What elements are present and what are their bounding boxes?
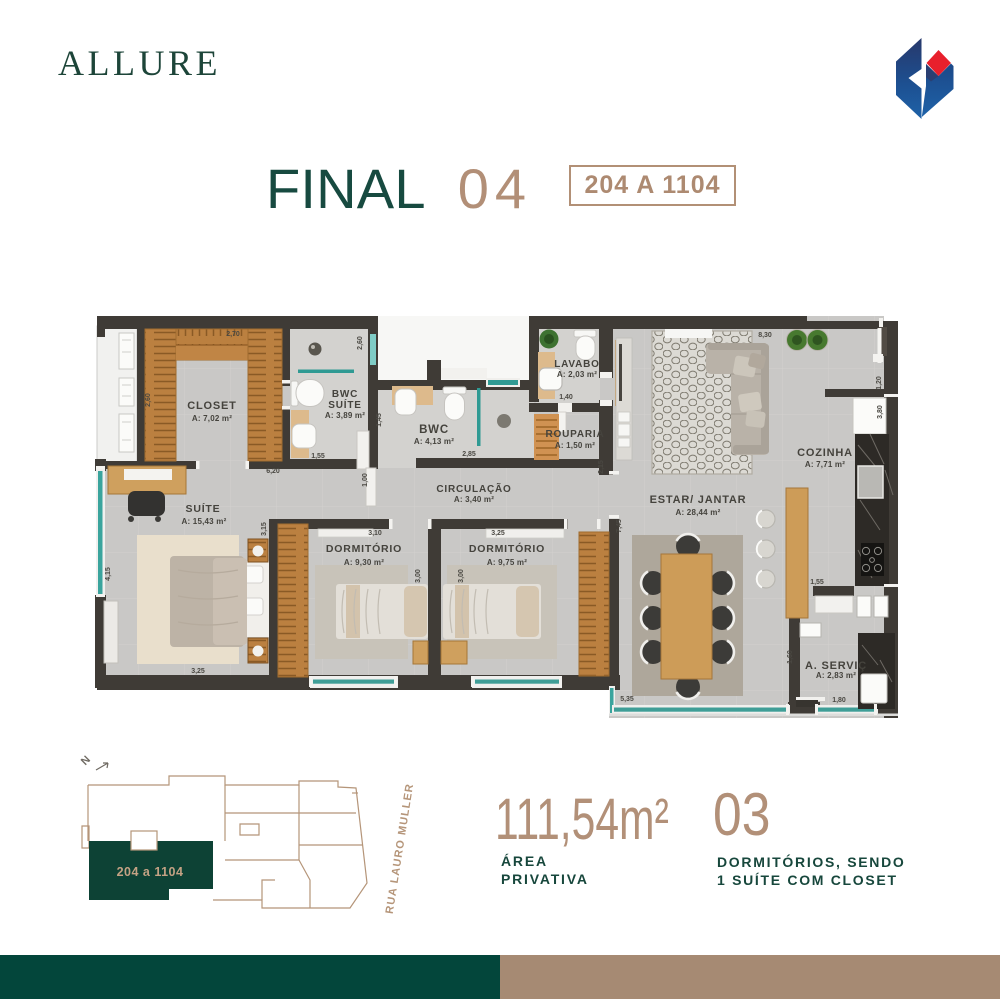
svg-text:A: 15,43 m²: A: 15,43 m²	[182, 517, 227, 526]
svg-text:ESTAR/ JANTAR: ESTAR/ JANTAR	[650, 494, 747, 506]
svg-text:5,35: 5,35	[620, 696, 634, 703]
svg-text:1,60: 1,60	[787, 650, 794, 664]
svg-text:2,60: 2,60	[145, 393, 152, 407]
svg-text:3,80: 3,80	[877, 405, 884, 419]
svg-text:LAVABO: LAVABO	[554, 359, 600, 370]
svg-text:2,60: 2,60	[357, 336, 364, 350]
svg-text:1,55: 1,55	[311, 453, 325, 460]
svg-text:3,00: 3,00	[415, 569, 422, 583]
svg-text:4,15: 4,15	[105, 567, 112, 581]
svg-text:A: 9,30 m²: A: 9,30 m²	[344, 558, 384, 567]
svg-text:BWC: BWC	[419, 424, 449, 436]
svg-text:CIRCULAÇÃO: CIRCULAÇÃO	[436, 482, 511, 495]
svg-text:N: N	[79, 754, 93, 768]
svg-text:1,55: 1,55	[810, 579, 824, 586]
svg-text:RUA LAURO MULLER: RUA LAURO MULLER	[384, 782, 417, 914]
svg-text:3,25: 3,25	[491, 530, 505, 537]
svg-text:204 a 1104: 204 a 1104	[117, 865, 184, 879]
svg-text:1,80: 1,80	[832, 697, 846, 704]
svg-text:A: 4,13 m²: A: 4,13 m²	[414, 437, 454, 446]
svg-text:2,70: 2,70	[226, 331, 240, 338]
svg-text:SUÍTE: SUÍTE	[186, 502, 221, 515]
svg-text:ROUPARIA: ROUPARIA	[546, 429, 605, 440]
svg-text:A: 9,75 m²: A: 9,75 m²	[487, 558, 527, 567]
svg-text:A: 1,50 m²: A: 1,50 m²	[555, 441, 595, 450]
svg-text:A: 2,03 m²: A: 2,03 m²	[557, 370, 597, 379]
svg-text:1,40: 1,40	[559, 394, 573, 401]
svg-text:1,00: 1,00	[362, 473, 369, 487]
svg-text:3,10: 3,10	[368, 530, 382, 537]
svg-text:2,15: 2,15	[598, 460, 605, 474]
svg-text:3,15: 3,15	[261, 522, 268, 536]
svg-text:8,30: 8,30	[758, 332, 772, 339]
svg-text:A: 3,89 m²: A: 3,89 m²	[325, 411, 365, 420]
svg-text:6,20: 6,20	[266, 468, 280, 475]
svg-text:1,45: 1,45	[376, 413, 383, 427]
svg-text:A: 3,40 m²: A: 3,40 m²	[454, 495, 494, 504]
svg-text:DORMITÓRIO: DORMITÓRIO	[469, 542, 545, 555]
svg-text:7,45: 7,45	[616, 519, 623, 533]
svg-text:3,00: 3,00	[458, 569, 465, 583]
svg-text:SUÍTE: SUÍTE	[328, 398, 361, 411]
svg-text:3,25: 3,25	[191, 668, 205, 675]
svg-text:DORMITÓRIO: DORMITÓRIO	[326, 542, 402, 555]
svg-text:A: 2,83 m²: A: 2,83 m²	[816, 671, 856, 680]
svg-text:A: 7,02 m²: A: 7,02 m²	[192, 414, 232, 423]
svg-text:CLOSET: CLOSET	[187, 400, 236, 412]
svg-text:A: 7,71 m²: A: 7,71 m²	[805, 460, 845, 469]
svg-text:COZINHA: COZINHA	[797, 447, 853, 459]
svg-text:2,85: 2,85	[462, 451, 476, 458]
svg-text:1,20: 1,20	[876, 376, 883, 390]
svg-text:BWC: BWC	[332, 389, 358, 400]
svg-text:A: 28,44 m²: A: 28,44 m²	[676, 508, 721, 517]
